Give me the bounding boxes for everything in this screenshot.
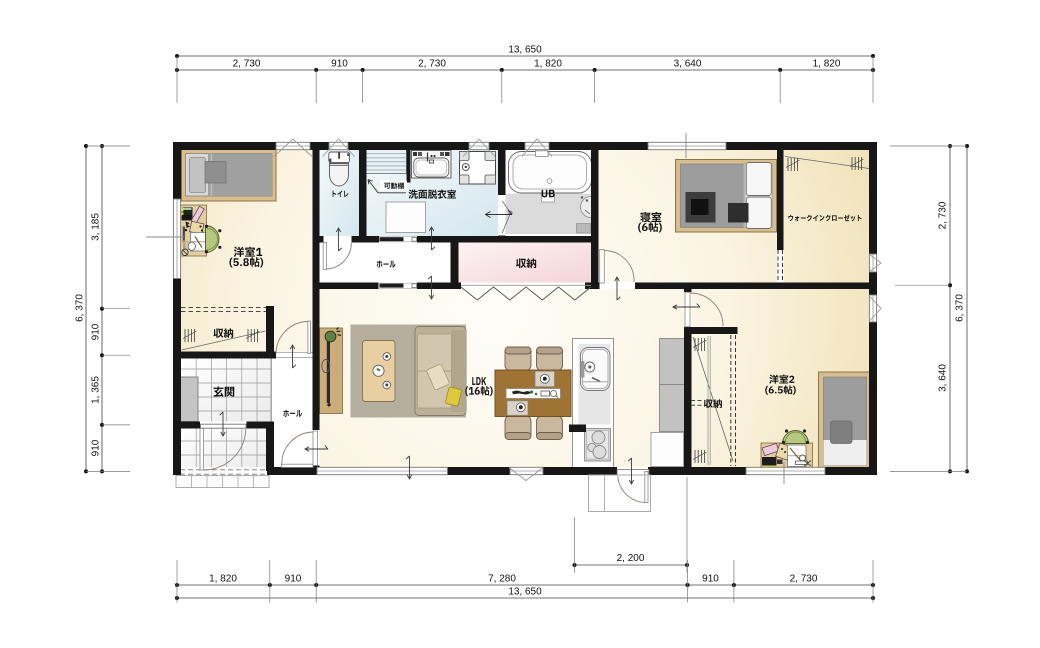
svg-text:2, 730: 2, 730 [790,574,818,585]
svg-text:3, 185: 3, 185 [91,213,102,241]
svg-text:1, 820: 1, 820 [813,59,841,70]
svg-text:2, 200: 2, 200 [617,553,645,564]
svg-text:2, 730: 2, 730 [938,201,949,229]
svg-text:7, 280: 7, 280 [488,574,516,585]
svg-text:3, 640: 3, 640 [938,364,949,392]
svg-text:6, 370: 6, 370 [955,294,966,322]
svg-text:2, 730: 2, 730 [233,59,261,70]
svg-text:13, 650: 13, 650 [508,45,542,56]
svg-text:1, 365: 1, 365 [91,376,102,404]
svg-text:910: 910 [702,574,719,585]
svg-text:910: 910 [285,574,302,585]
svg-text:1, 820: 1, 820 [209,574,237,585]
svg-text:6, 370: 6, 370 [75,294,86,322]
svg-text:910: 910 [331,59,348,70]
svg-text:2, 730: 2, 730 [418,59,446,70]
svg-text:13, 650: 13, 650 [508,587,542,598]
svg-text:910: 910 [91,439,102,456]
svg-text:3, 640: 3, 640 [674,59,702,70]
svg-text:910: 910 [91,323,102,340]
svg-text:1, 820: 1, 820 [534,59,562,70]
